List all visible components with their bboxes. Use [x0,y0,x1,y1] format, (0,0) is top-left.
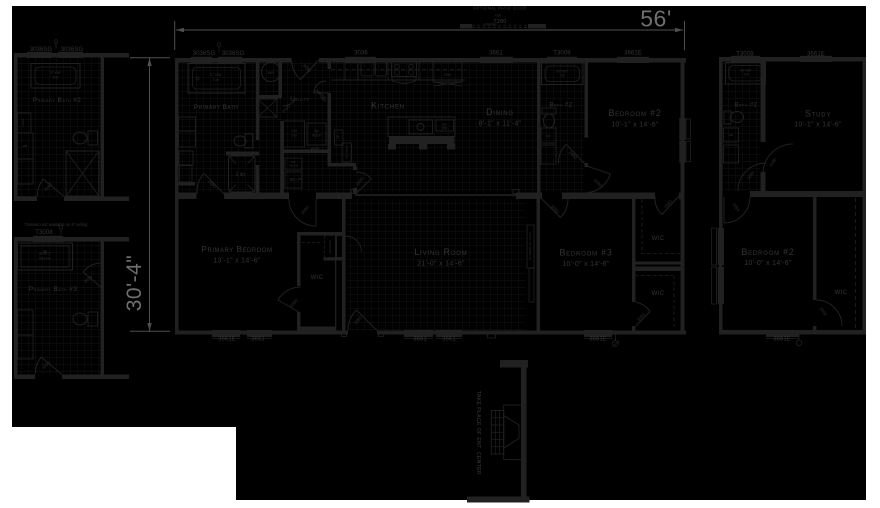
svg-text:3036SG: 3036SG [193,51,216,57]
svg-text:Kitchen: Kitchen [371,101,405,111]
svg-text:3661E: 3661E [218,337,236,343]
svg-text:WIC: WIC [652,236,665,242]
svg-text:Opt:: Opt: [291,160,296,164]
svg-text:Tub: Tub [743,73,749,77]
svg-text:10'-0" x 14'-6": 10'-0" x 14'-6" [562,261,610,268]
svg-text:Tub: Tub [52,76,58,80]
svg-text:3661: 3661 [413,337,427,343]
svg-text:T3008: T3008 [736,52,754,58]
svg-text:WIC: WIC [311,275,324,281]
svg-text:Transom not available on 8' ce: Transom not available on 8' ceiling [25,222,88,227]
svg-text:Adj Shelves: Adj Shelves [345,144,349,158]
svg-text:WIC: WIC [835,290,848,296]
svg-text:DW: DW [442,127,447,131]
svg-text:3661: 3661 [442,337,456,343]
svg-text:Utility: Utility [290,96,309,103]
svg-text:30'-4": 30'-4" [123,255,146,312]
svg-text:Linen: Linen [21,119,25,127]
svg-text:TAKE PLACE OF ENT. CENTER: TAKE PLACE OF ENT. CENTER [475,391,481,475]
svg-text:3661E: 3661E [773,337,791,343]
svg-text:Bedroom #2: Bedroom #2 [608,108,661,118]
svg-text:Tub: Tub [559,74,565,78]
svg-text:Primary Bath #2: Primary Bath #2 [33,97,81,104]
svg-text:3661: 3661 [251,337,265,343]
svg-text:3036SG: 3036SG [61,47,84,53]
svg-text:Primary Bath: Primary Bath [194,104,238,111]
svg-text:56': 56' [640,6,671,32]
svg-text:Bedroom #2: Bedroom #2 [741,247,794,257]
svg-text:Dry: Dry [291,134,297,138]
svg-text:Primary Bedroom: Primary Bedroom [202,245,273,254]
svg-text:Shower: Shower [39,257,52,261]
svg-text:Primary Bath #3: Primary Bath #3 [29,286,77,293]
svg-text:Bath #2: Bath #2 [735,103,758,109]
svg-text:Opt: Opt [291,129,297,133]
svg-text:10'-1" x 14'-6": 10'-1" x 14'-6" [611,122,659,129]
svg-text:Wash: Wash [312,134,321,138]
svg-text:13'-1" x 14'-6": 13'-1" x 14'-6" [213,258,261,265]
svg-text:3661E: 3661E [624,51,642,57]
svg-text:Opt: Opt [495,14,501,18]
svg-text:10'-1" x 14'-6": 10'-1" x 14'-6" [794,122,842,129]
svg-text:Bedroom #3: Bedroom #3 [559,248,612,258]
svg-text:8'-1" x 11'-4": 8'-1" x 11'-4" [479,121,522,128]
svg-text:36": 36" [239,172,243,176]
svg-text:21'-0" x 14'-6": 21'-0" x 14'-6" [417,261,465,268]
svg-text:3036SG: 3036SG [30,47,53,53]
svg-text:WDP: WDP [311,147,320,151]
svg-text:Dining: Dining [486,107,514,117]
svg-text:W.I.P.: W.I.P. [290,177,303,182]
svg-text:Living Room: Living Room [414,247,467,257]
svg-text:Opt: Opt [336,135,340,139]
svg-text:3661: 3661 [489,51,503,57]
svg-text:3036: 3036 [354,51,368,57]
svg-text:Refr: Refr [444,73,452,77]
svg-text:72"x36": 72"x36" [49,71,62,75]
svg-text:10'-0" x 14'-6": 10'-0" x 14'-6" [744,260,792,267]
svg-text:T3008: T3008 [553,51,571,57]
svg-text:Study: Study [805,109,831,119]
svg-text:T3008: T3008 [35,230,53,236]
svg-text:Bath #2: Bath #2 [549,102,572,109]
svg-text:Opt Closet: Opt Closet [328,240,332,253]
svg-text:42" Highboy Ent. Center: 42" Highboy Ent. Center [528,232,532,260]
svg-text:OPTIONAL PATIO DOOR: OPTIONAL PATIO DOOR [473,6,527,11]
svg-text:Opt: Opt [314,129,320,133]
svg-text:72"x36": 72"x36" [209,73,223,77]
svg-text:42"x72": 42"x72" [39,252,52,256]
svg-text:3036SG: 3036SG [222,51,245,57]
svg-text:3661E: 3661E [807,52,825,58]
svg-text:Std Cab: Std Cab [289,164,299,168]
svg-text:3661E: 3661E [589,337,607,343]
svg-text:WIC: WIC [652,291,665,297]
svg-text:Tub: Tub [213,78,220,82]
svg-text:WH: WH [268,71,275,75]
